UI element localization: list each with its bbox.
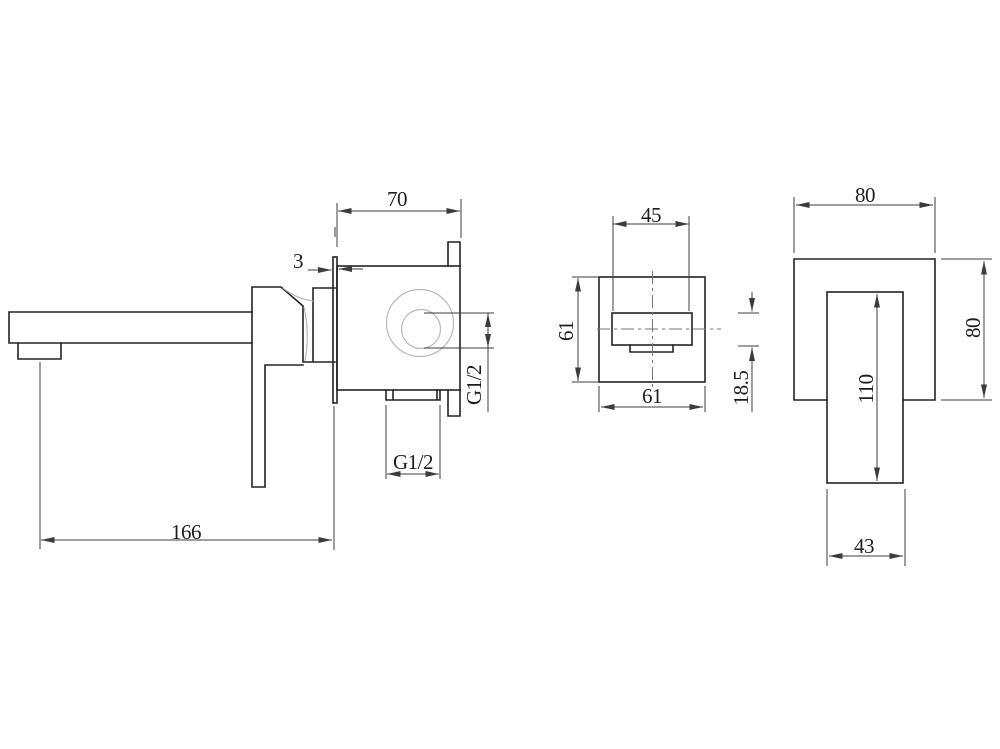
top-mounting-tab bbox=[448, 242, 460, 266]
lever-stub-front bbox=[630, 345, 673, 352]
bottom-mounting-tab bbox=[448, 390, 460, 416]
faucet-dimension-drawing: 70 3 G1/2 G1/2 166 bbox=[0, 0, 1000, 749]
dim-label-lever-length: 110 bbox=[854, 374, 878, 403]
aerator-outline bbox=[18, 343, 61, 359]
dim-label-plate-width-61: 61 bbox=[642, 384, 662, 408]
dim-label-side-inlet-thread: G1/2 bbox=[462, 365, 486, 405]
dim-label-plate-height-61: 61 bbox=[554, 321, 578, 341]
dim-label-lever-width: 43 bbox=[854, 534, 874, 558]
dim-label-handle-base-width: 45 bbox=[641, 203, 661, 227]
front-view: 45 61 61 18.5 bbox=[554, 203, 759, 412]
concealed-body bbox=[337, 266, 460, 390]
handle-view: 80 80 110 43 bbox=[794, 183, 992, 566]
ext-line-18-5 bbox=[738, 313, 759, 346]
dim-label-plate-width-80: 80 bbox=[855, 183, 875, 207]
bottom-outlet-stub bbox=[386, 390, 440, 400]
dim-label-plate-thickness: 3 bbox=[293, 249, 303, 273]
dim-label-handle-base-height: 18.5 bbox=[729, 371, 753, 406]
dim-label-spout-reach: 166 bbox=[171, 520, 201, 544]
side-inlet-inner-circle bbox=[402, 310, 441, 349]
technical-drawing-canvas: 70 3 G1/2 G1/2 166 bbox=[0, 0, 1000, 749]
side-view: 70 3 G1/2 G1/2 166 bbox=[9, 187, 494, 550]
dim-label-plate-height-80: 80 bbox=[961, 318, 985, 338]
spout-outline bbox=[9, 312, 252, 343]
side-inlet-outer-circle bbox=[387, 290, 454, 357]
handle-body-outline bbox=[252, 287, 335, 487]
dim-label-bottom-inlet-thread: G1/2 bbox=[393, 450, 433, 474]
ext-line-45 bbox=[613, 216, 689, 311]
dim-label-body-depth: 70 bbox=[387, 187, 407, 211]
handle-arc-thin-line bbox=[283, 288, 313, 361]
